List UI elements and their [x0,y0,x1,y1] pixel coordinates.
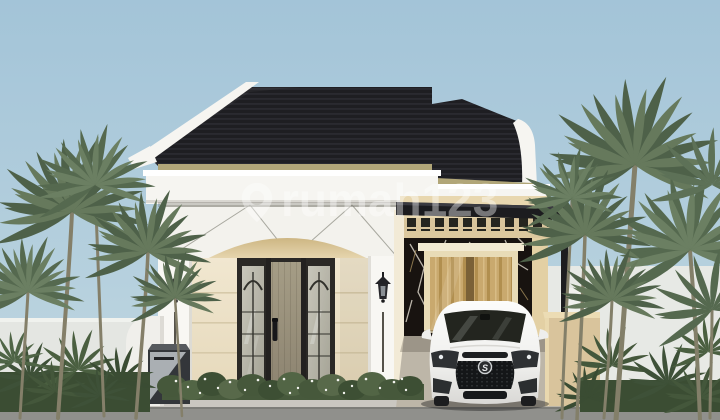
car-emblem-badge: S [479,361,492,374]
door-sidelight-right [308,266,330,386]
car-headlight-left [431,350,459,369]
car-headlight-right [511,350,539,369]
door-sidelight-left [242,266,264,386]
house-exterior-render: S [0,0,720,420]
door-handle [272,318,278,341]
car-emblem-letter: S [482,363,488,373]
car: S [421,301,549,411]
